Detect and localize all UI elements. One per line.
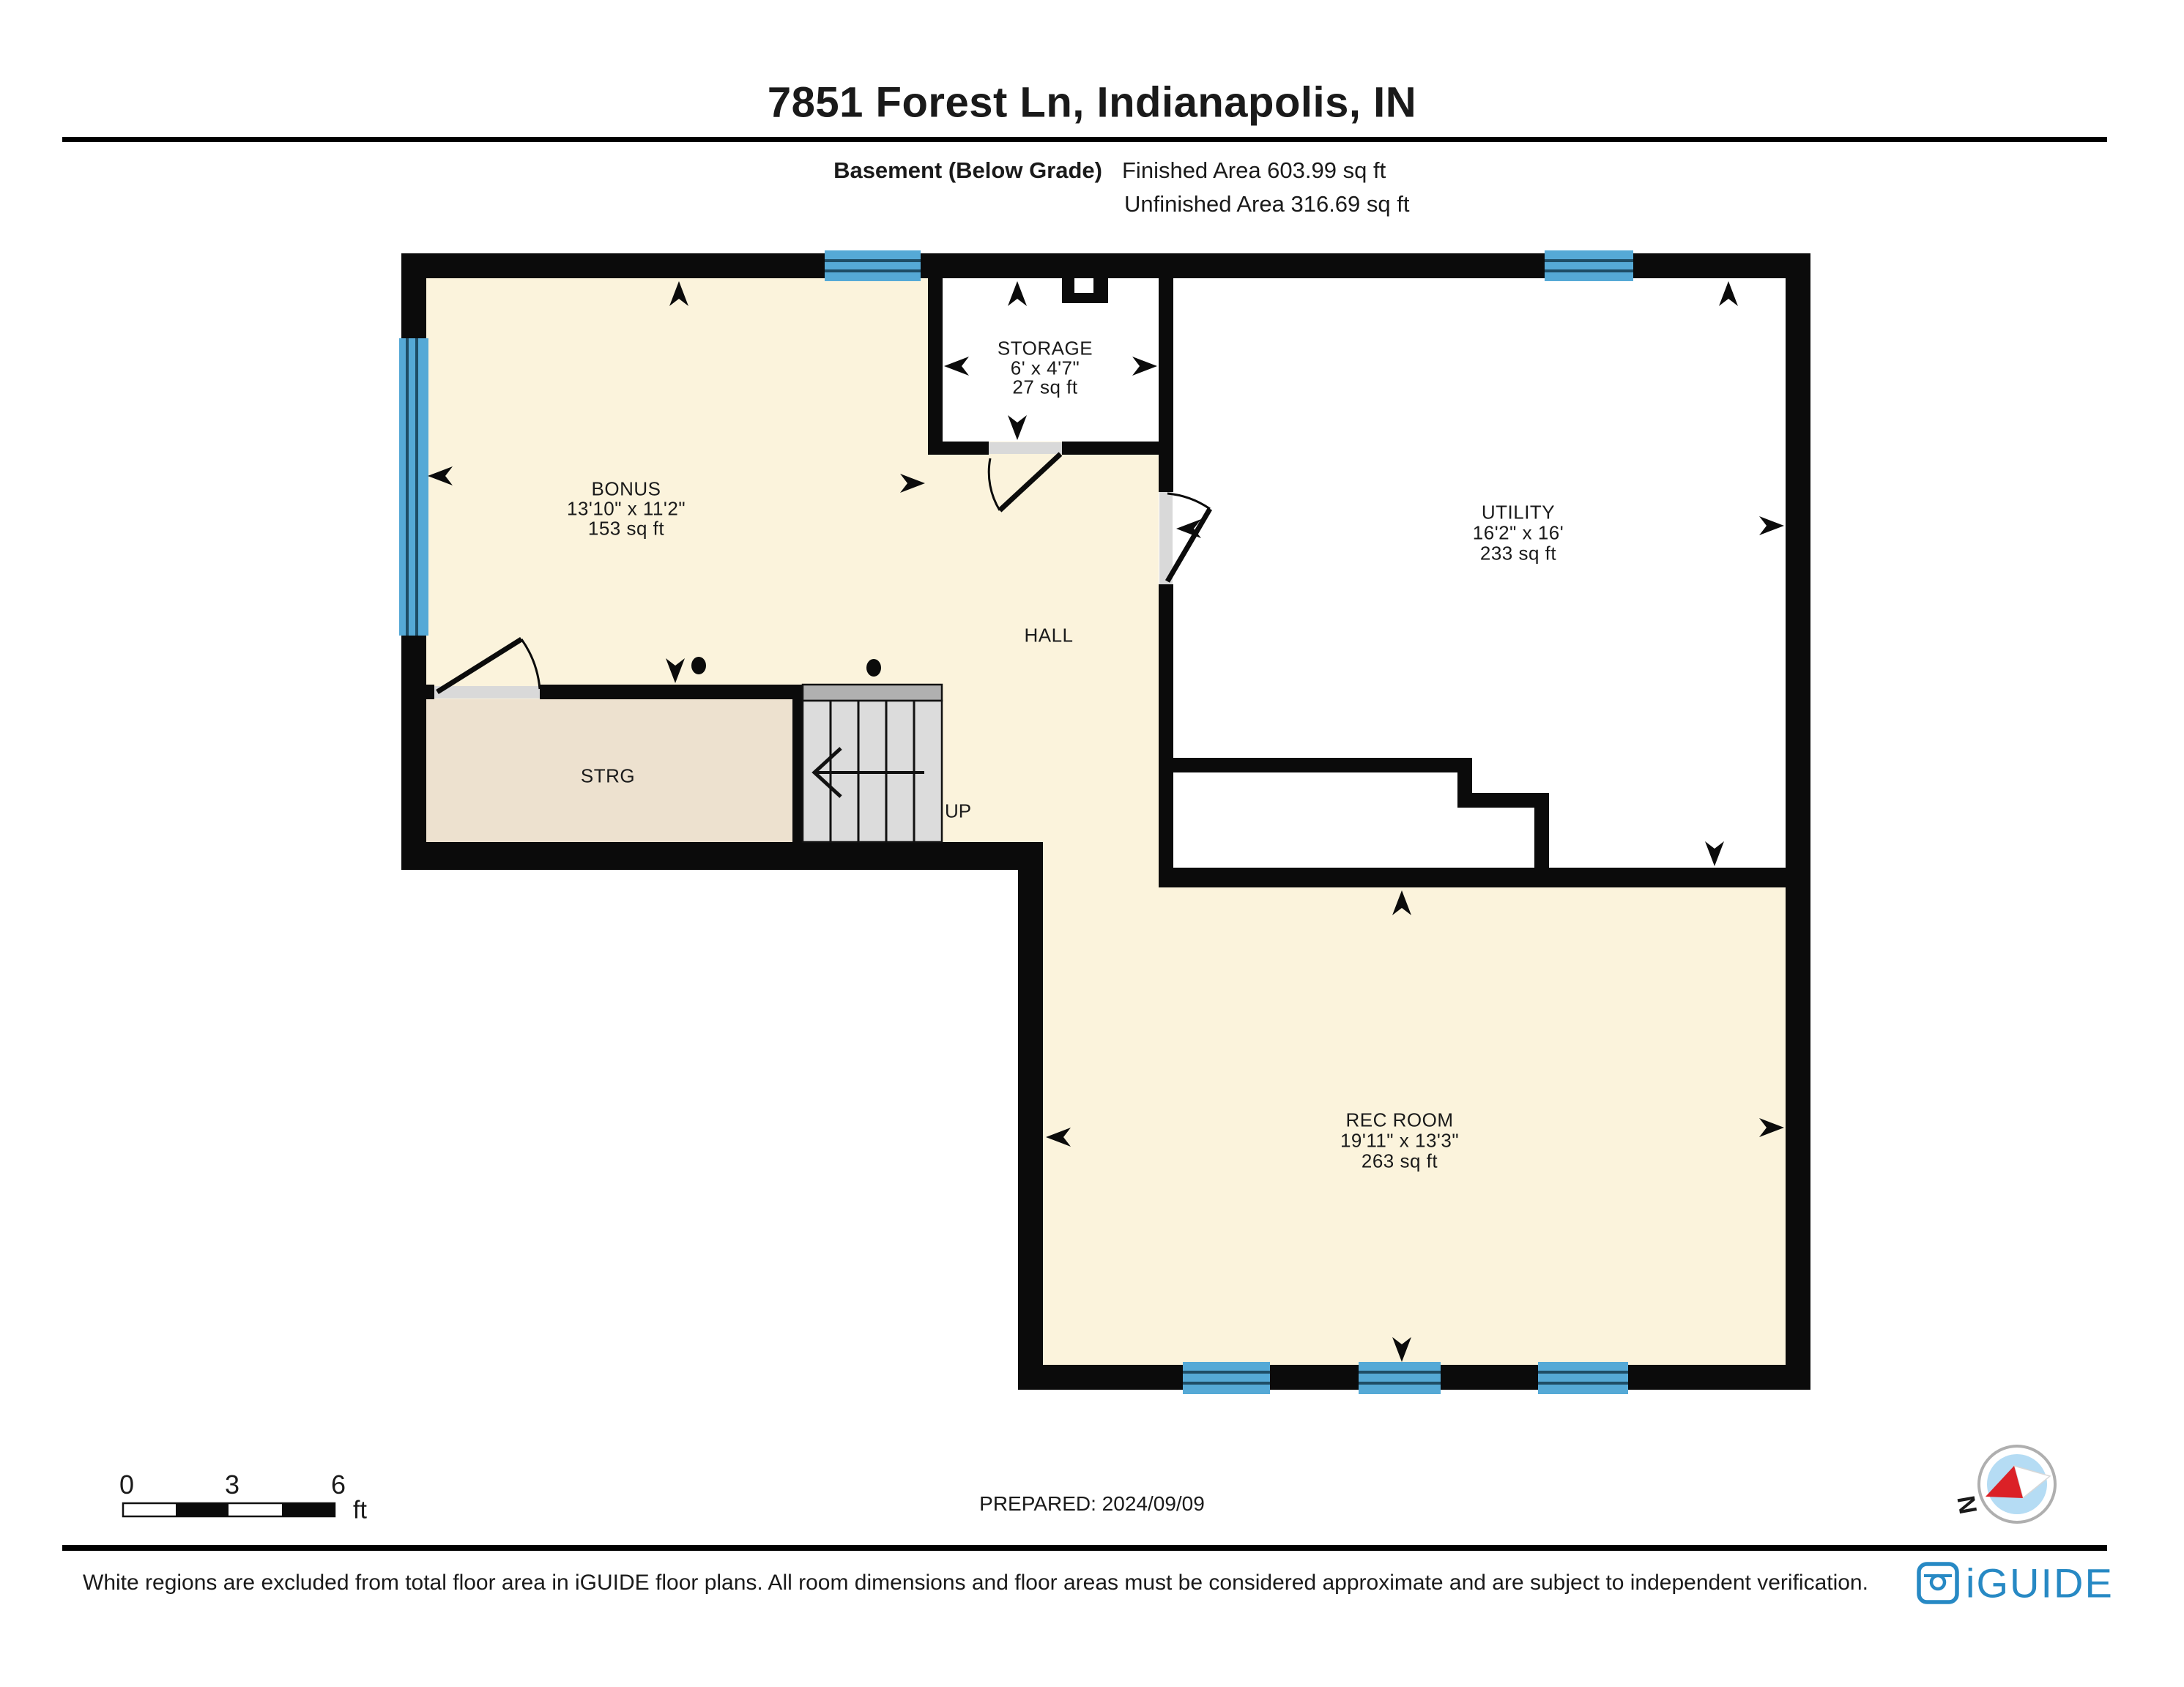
wall-stairs-left bbox=[792, 685, 803, 842]
floorplan-page: { "header": { "title": "7851 Forest Ln, … bbox=[0, 0, 2184, 1687]
room-label-strg: STRG bbox=[581, 765, 635, 788]
window-top-bonus bbox=[825, 250, 921, 281]
wall-storage-bottom-left bbox=[928, 442, 989, 455]
window-bottom-rec-2 bbox=[1359, 1362, 1441, 1394]
wall-strg-top bbox=[540, 685, 792, 699]
utility-door-sill bbox=[1159, 492, 1173, 584]
footer-disclaimer: White regions are excluded from total fl… bbox=[83, 1571, 1868, 1595]
post-dot bbox=[691, 657, 706, 674]
window-bottom-rec-1 bbox=[1183, 1362, 1270, 1394]
wall-rec-left bbox=[1018, 842, 1043, 1390]
scale-tick-6: 6 bbox=[331, 1470, 346, 1500]
room-label-bonus-area: 153 sq ft bbox=[588, 518, 664, 540]
floorplan-canvas bbox=[0, 0, 2184, 1687]
scale-bar-segment bbox=[282, 1503, 335, 1516]
stairs-up-label: UP bbox=[945, 800, 971, 823]
wall-strg-top-stub bbox=[425, 685, 434, 699]
iguide-logo-icon bbox=[1919, 1564, 1957, 1602]
storage-door-sill bbox=[989, 442, 1062, 454]
wall-storage-left bbox=[928, 278, 943, 455]
unfinished-area-text: Unfinished Area 316.69 sq ft bbox=[1124, 191, 1409, 217]
staircase bbox=[803, 685, 942, 842]
compass bbox=[1979, 1446, 2055, 1522]
wall-block-bottom bbox=[401, 842, 1043, 870]
wall-utility-left-lower bbox=[1159, 584, 1173, 887]
iguide-camera-lens bbox=[1931, 1576, 1945, 1589]
page-title: 7851 Forest Ln, Indianapolis, IN bbox=[768, 78, 1416, 127]
window-left-bonus bbox=[399, 338, 428, 636]
room-label-rec-dims: 19'11" x 13'3" bbox=[1340, 1130, 1459, 1152]
corridor-floor bbox=[1043, 842, 1159, 887]
window-bottom-rec-3 bbox=[1538, 1362, 1628, 1394]
wall-utility-left-upper bbox=[1159, 278, 1173, 492]
scale-bar bbox=[123, 1503, 335, 1516]
room-fills bbox=[426, 278, 1786, 1365]
room-label-hall: HALL bbox=[1024, 625, 1073, 647]
scale-tick-0: 0 bbox=[119, 1470, 134, 1500]
room-label-storage-area: 27 sq ft bbox=[1012, 376, 1077, 399]
floor-label: Basement (Below Grade) bbox=[833, 157, 1102, 184]
header-divider bbox=[62, 137, 2107, 142]
utility-floor bbox=[1173, 278, 1786, 868]
room-label-rec-area: 263 sq ft bbox=[1362, 1150, 1438, 1173]
room-label-utility-dims: 16'2" x 16' bbox=[1473, 522, 1564, 545]
chimney-notch bbox=[1074, 278, 1093, 293]
post-dot bbox=[866, 659, 881, 677]
iguide-brand-text: iGUIDE bbox=[1966, 1560, 2114, 1607]
room-label-utility-area: 233 sq ft bbox=[1480, 543, 1556, 565]
wall-utility-notch-top bbox=[1159, 758, 1472, 772]
scale-bar-segment bbox=[176, 1503, 229, 1516]
wall-right bbox=[1786, 253, 1810, 1390]
stair-landing bbox=[803, 685, 942, 701]
footer-divider bbox=[62, 1545, 2107, 1551]
prepared-date: PREPARED: 2024/09/09 bbox=[979, 1492, 1205, 1516]
window-top-utility bbox=[1545, 250, 1633, 281]
finished-area-text: Finished Area 603.99 sq ft bbox=[1122, 157, 1386, 184]
wall-storage-bottom-right bbox=[1062, 442, 1173, 455]
strg-door-sill bbox=[434, 686, 540, 699]
scale-unit: ft bbox=[353, 1497, 367, 1525]
wall-rec-top bbox=[1173, 868, 1786, 887]
room-label-rec-name: REC ROOM bbox=[1346, 1109, 1454, 1132]
room-label-utility-name: UTILITY bbox=[1482, 502, 1555, 524]
scale-tick-3: 3 bbox=[225, 1470, 239, 1500]
